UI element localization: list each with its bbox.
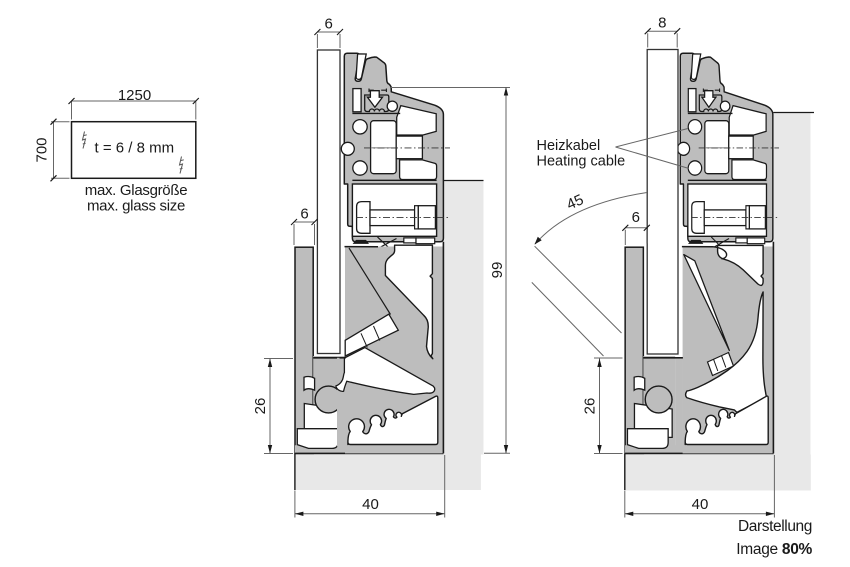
- svg-text:26: 26: [252, 398, 269, 415]
- svg-text:6: 6: [632, 209, 640, 226]
- svg-text:Heating cable: Heating cable: [537, 154, 626, 170]
- svg-text:max. glass size: max. glass size: [87, 198, 185, 215]
- svg-text:6: 6: [325, 16, 333, 33]
- svg-text:t = 6 / 8 mm: t = 6 / 8 mm: [95, 140, 175, 157]
- svg-text:max. Glasgröße: max. Glasgröße: [85, 182, 188, 199]
- svg-text:Darstellung: Darstellung: [738, 518, 812, 535]
- svg-text:26: 26: [582, 398, 599, 415]
- svg-text:1250: 1250: [118, 87, 151, 104]
- svg-text:40: 40: [692, 496, 709, 513]
- svg-text:6: 6: [300, 206, 308, 223]
- svg-text:8: 8: [658, 15, 666, 32]
- svg-text:40: 40: [362, 496, 379, 513]
- svg-text:Image 80%: Image 80%: [736, 541, 812, 558]
- svg-text:Heizkabel: Heizkabel: [537, 138, 601, 154]
- svg-text:99: 99: [489, 262, 506, 279]
- svg-text:700: 700: [34, 137, 51, 162]
